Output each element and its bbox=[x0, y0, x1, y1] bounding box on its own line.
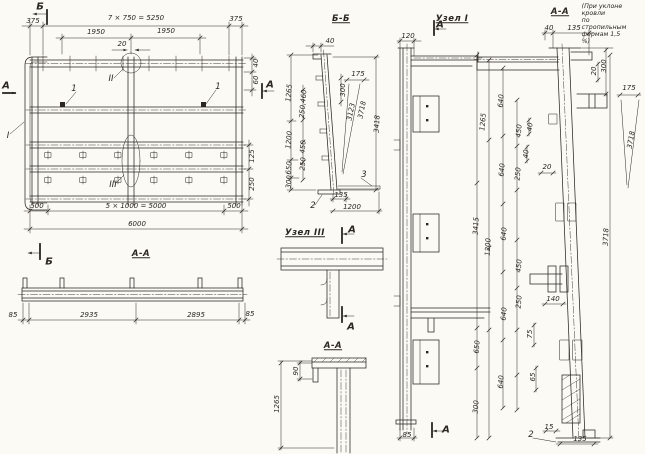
detail-aa-linework bbox=[278, 358, 366, 453]
section-aa-bottom-linework bbox=[18, 244, 250, 324]
node-iii-linework bbox=[277, 228, 387, 322]
section-bb-linework bbox=[287, 43, 382, 214]
node-i-linework bbox=[394, 21, 490, 441]
section-aa-right-linework bbox=[474, 30, 641, 446]
plan-view-linework bbox=[3, 10, 274, 233]
drawing-linework bbox=[0, 0, 645, 454]
drawing-sheet: Б3757 × 750 = 525037519501950204060ААII1… bbox=[0, 0, 645, 454]
